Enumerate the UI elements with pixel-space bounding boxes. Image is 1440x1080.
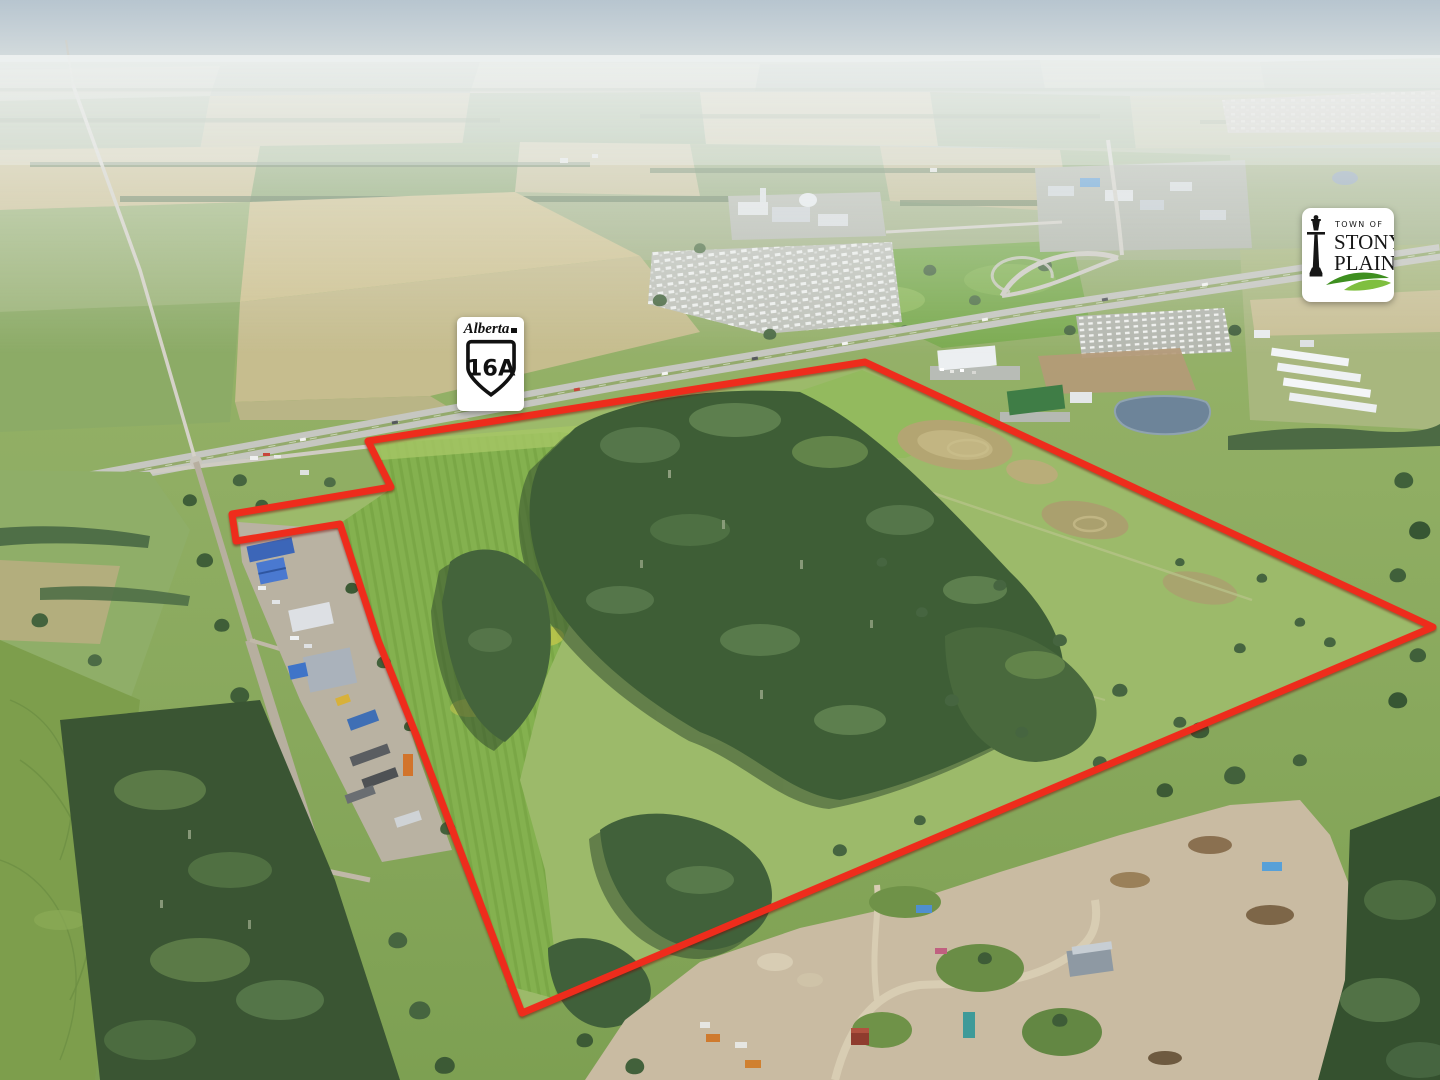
lamppost-icon <box>1307 215 1325 276</box>
alberta-script-label: Alberta <box>457 321 524 338</box>
route-shield: 16A <box>465 339 517 399</box>
landscape-scene <box>0 0 1440 1080</box>
logo-town-of: TOWN OF <box>1334 220 1383 229</box>
alberta-flag-mark <box>511 328 517 333</box>
logo-swoosh-light <box>1344 280 1391 291</box>
highway-16a-sign: Alberta 16A <box>457 317 524 411</box>
stormwater-pond <box>1115 396 1210 434</box>
aerial-photo: Alberta 16A TOWN OF STONY PLAIN <box>0 0 1440 1080</box>
logo-plain: PLAIN <box>1334 251 1394 275</box>
horizon-haze <box>0 55 1440 165</box>
stony-plain-logo: TOWN OF STONY PLAIN <box>1302 208 1394 302</box>
alberta-text: Alberta <box>464 321 510 337</box>
route-number: 16A <box>466 355 515 381</box>
